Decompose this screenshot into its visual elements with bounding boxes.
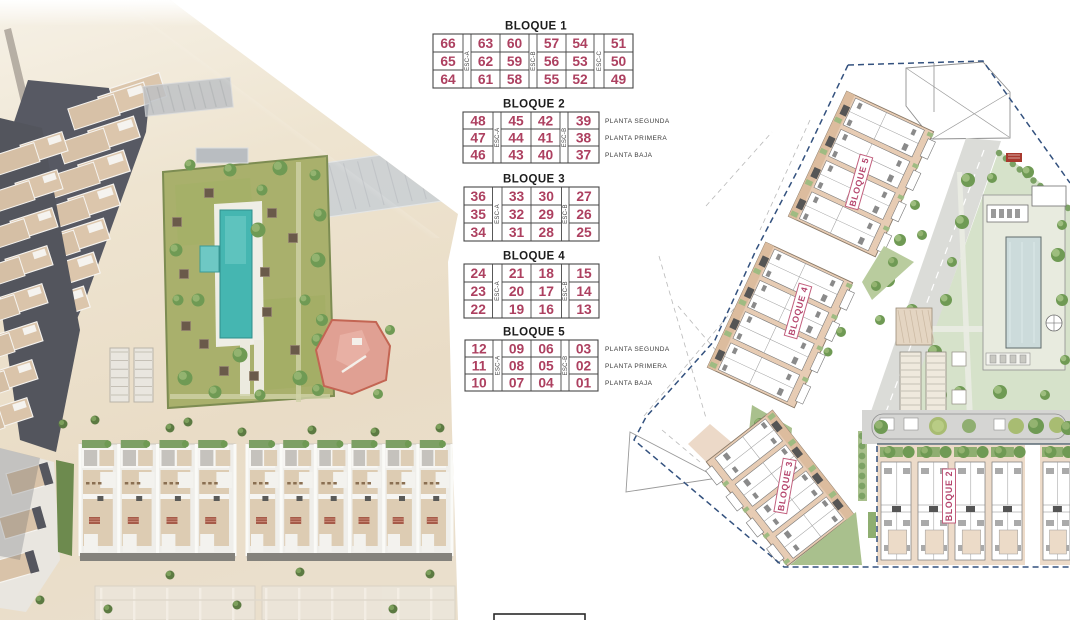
svg-text:BLOQUE 2: BLOQUE 2 [944, 471, 954, 522]
svg-text:PLANTA SEGUNDA: PLANTA SEGUNDA [605, 118, 670, 125]
svg-text:PLANTA PRIMERA: PLANTA PRIMERA [605, 135, 667, 142]
svg-text:ESC-B: ESC-B [563, 204, 569, 224]
svg-text:53: 53 [572, 54, 588, 69]
svg-text:46: 46 [470, 148, 486, 163]
svg-text:05: 05 [538, 359, 554, 374]
svg-text:55: 55 [544, 72, 560, 87]
svg-text:65: 65 [440, 54, 456, 69]
svg-text:ESC-A: ESC-A [495, 204, 501, 224]
svg-text:25: 25 [576, 225, 592, 240]
svg-text:20: 20 [509, 284, 525, 299]
svg-text:PLANTA SEGUNDA: PLANTA SEGUNDA [605, 346, 670, 353]
svg-text:35: 35 [471, 207, 487, 222]
svg-text:50: 50 [611, 54, 627, 69]
svg-text:ESC-A: ESC-A [465, 51, 471, 71]
svg-text:12: 12 [471, 342, 487, 357]
svg-text:51: 51 [611, 36, 627, 51]
svg-text:60: 60 [507, 36, 523, 51]
svg-text:17: 17 [539, 284, 555, 299]
svg-text:PLANTA PRIMERA: PLANTA PRIMERA [605, 363, 667, 370]
svg-text:BLOQUE 1: BLOQUE 1 [505, 21, 567, 33]
svg-text:32: 32 [509, 207, 525, 222]
svg-text:49: 49 [611, 72, 627, 87]
svg-text:ESC-B: ESC-B [562, 128, 568, 148]
svg-text:16: 16 [539, 302, 555, 317]
svg-text:ESC-A: ESC-A [496, 356, 502, 376]
svg-text:ESC-C: ESC-C [597, 51, 603, 72]
svg-text:BLOQUE 5: BLOQUE 5 [503, 327, 565, 339]
svg-text:ESC-B: ESC-B [563, 356, 569, 376]
svg-text:02: 02 [576, 359, 592, 374]
svg-text:47: 47 [470, 131, 486, 146]
svg-text:27: 27 [576, 189, 592, 204]
svg-text:03: 03 [576, 342, 592, 357]
svg-text:13: 13 [576, 302, 592, 317]
svg-text:48: 48 [470, 114, 486, 129]
svg-text:ESC-A: ESC-A [495, 281, 501, 301]
svg-text:21: 21 [509, 266, 525, 281]
svg-text:ESC-A: ESC-A [495, 128, 501, 148]
svg-text:59: 59 [507, 54, 523, 69]
svg-text:61: 61 [478, 72, 494, 87]
svg-text:41: 41 [538, 131, 554, 146]
svg-text:54: 54 [572, 36, 588, 51]
svg-text:BLOQUE 2: BLOQUE 2 [503, 99, 565, 111]
svg-text:37: 37 [576, 148, 592, 163]
svg-text:24: 24 [471, 266, 487, 281]
svg-text:18: 18 [539, 266, 555, 281]
svg-text:66: 66 [440, 36, 456, 51]
svg-text:PLANTA BAJA: PLANTA BAJA [605, 152, 653, 159]
svg-text:22: 22 [471, 302, 487, 317]
svg-text:26: 26 [576, 207, 592, 222]
svg-text:PLANTA BAJA: PLANTA BAJA [605, 380, 653, 387]
svg-text:15: 15 [576, 266, 592, 281]
svg-text:34: 34 [471, 225, 487, 240]
svg-text:06: 06 [538, 342, 554, 357]
svg-text:63: 63 [478, 36, 494, 51]
svg-text:58: 58 [507, 72, 523, 87]
svg-text:40: 40 [538, 148, 554, 163]
svg-text:ESC-B: ESC-B [563, 281, 569, 301]
svg-text:62: 62 [478, 54, 494, 69]
svg-text:30: 30 [539, 189, 555, 204]
svg-text:01: 01 [576, 376, 592, 391]
svg-text:45: 45 [508, 114, 524, 129]
svg-text:38: 38 [576, 131, 592, 146]
svg-text:23: 23 [471, 284, 487, 299]
svg-text:64: 64 [440, 72, 456, 87]
svg-text:52: 52 [572, 72, 588, 87]
svg-text:ESC-B: ESC-B [531, 51, 537, 71]
svg-text:31: 31 [509, 225, 525, 240]
svg-text:42: 42 [538, 114, 554, 129]
svg-text:43: 43 [508, 148, 524, 163]
svg-text:36: 36 [471, 189, 487, 204]
svg-text:07: 07 [509, 376, 525, 391]
svg-text:BLOQUE 3: BLOQUE 3 [503, 174, 565, 186]
svg-text:56: 56 [544, 54, 560, 69]
svg-text:39: 39 [576, 114, 592, 129]
svg-text:29: 29 [539, 207, 555, 222]
svg-text:08: 08 [509, 359, 525, 374]
svg-text:28: 28 [539, 225, 555, 240]
svg-text:11: 11 [472, 359, 487, 374]
svg-text:44: 44 [508, 131, 524, 146]
svg-text:10: 10 [471, 376, 487, 391]
svg-text:09: 09 [509, 342, 525, 357]
svg-text:04: 04 [538, 376, 554, 391]
svg-text:19: 19 [509, 302, 525, 317]
svg-text:33: 33 [509, 189, 525, 204]
svg-text:57: 57 [544, 36, 560, 51]
svg-text:14: 14 [576, 284, 592, 299]
svg-text:BLOQUE 4: BLOQUE 4 [503, 251, 565, 263]
